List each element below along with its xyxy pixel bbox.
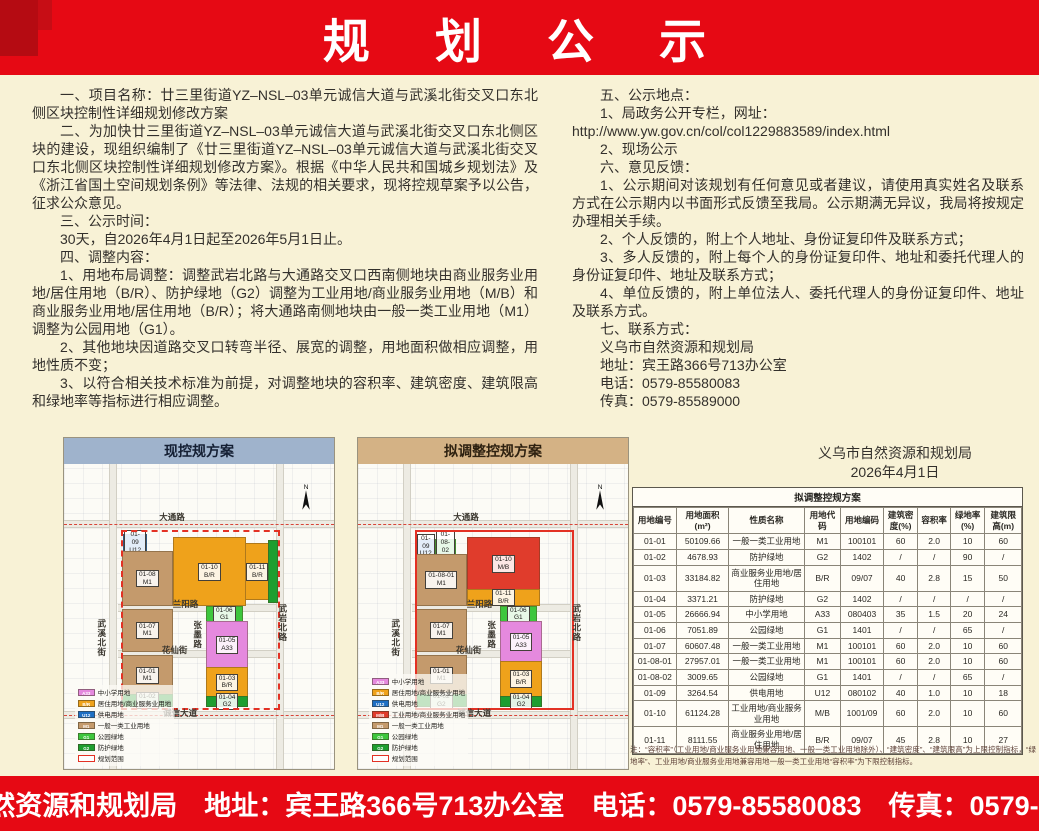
table-row: 01-10 61124.28 工业用地/商业服务业用地 M/B 1001/09 … [634, 701, 1022, 727]
legend-item: B/R 居住用地/商业服务业用地 [372, 687, 465, 697]
legend-item: G2 防护绿地 [78, 742, 171, 752]
legend-item: U12 供电用地 [372, 698, 465, 708]
cell-land-code: 100101 [841, 654, 884, 670]
map-legend: A33 中小学用地 B/R 居住用地/商业服务业用地 U12 供电用地 [75, 685, 174, 766]
cell-green-rate: 10 [950, 654, 985, 670]
parcel-code: M1 [143, 579, 152, 587]
parcel-id: 01-11 [249, 564, 265, 572]
legend-label: 公园绿地 [98, 731, 124, 741]
cell-use-name: 中小学用地 [729, 607, 804, 623]
parcel-label: 01-11 B/R [246, 563, 268, 581]
table-header-cell: 用地编号 [634, 508, 677, 534]
table-row: 01-01 50109.66 一般一类工业用地 M1 100101 60 2.0… [634, 534, 1022, 550]
parcel-label: 01-07 M1 [430, 622, 453, 640]
table-row: 01-07 60607.48 一般一类工业用地 M1 100101 60 2.0… [634, 638, 1022, 654]
legend-swatch: M/B [372, 711, 389, 718]
cell-area: 3264.54 [676, 685, 729, 701]
land-parcel: 01-09 U12 [123, 534, 147, 551]
parcel-id: 01-08-02 [439, 531, 452, 554]
cell-land-code: 080102 [841, 685, 884, 701]
table-header-cell: 建筑限高(m) [985, 508, 1022, 534]
control-plan-table-block: 拟调整控规方案 用地编号用地面积(m²)性质名称用地代码用地编码建筑密度(%)容… [632, 487, 1023, 755]
paragraph: 三、公示时间： [32, 212, 538, 230]
cell-green-rate: 90 [950, 549, 985, 565]
legend-item: G1 公园绿地 [78, 731, 171, 741]
table-header-cell: 建筑密度(%) [883, 508, 918, 534]
cell-plot-id: 01-04 [634, 591, 677, 607]
land-parcel: 01-10 B/R [173, 537, 245, 606]
legend-swatch: B/R [78, 700, 95, 707]
legend-swatch: M1 [372, 722, 389, 729]
parcel-id: 01-03 [513, 671, 530, 679]
paragraph: 2、其他地块因道路交叉口转弯半径、展宽的调整，用地面积做相应调整，用地性质不变； [32, 338, 538, 374]
cell-density: / [883, 591, 918, 607]
table-row: 01-02 4678.93 防护绿地 G2 1402 / / 90 / [634, 549, 1022, 565]
parcel-label: 01-03 B/R [510, 670, 533, 688]
map-proposed-title: 拟调整控规方案 [358, 438, 628, 464]
legend-item: M1 一般一类工业用地 [78, 720, 171, 730]
paragraph: 传真：0579-85589000 [572, 392, 1024, 410]
cell-land-code: 1402 [841, 549, 884, 565]
table-header-cell: 用地代码 [804, 508, 841, 534]
cell-far: 2.0 [918, 654, 951, 670]
legend-item: B/R 居住用地/商业服务业用地 [78, 698, 171, 708]
legend-item: G1 公园绿地 [372, 731, 465, 741]
parcel-code: G2 [223, 701, 232, 709]
cell-use-name: 工业用地/商业服务业用地 [729, 701, 804, 727]
paragraph: 1、公示期间对该规划有任何意见或者建议，请使用真实姓名及联系方式在公示期内以书面… [572, 176, 1024, 230]
land-parcel: 01-04 G2 [206, 696, 249, 707]
land-parcel: 01-08-01 M1 [416, 554, 467, 606]
cell-plot-id: 01-06 [634, 623, 677, 639]
cell-use-code: A33 [804, 607, 841, 623]
header-corner-mark [0, 0, 38, 56]
cell-green-rate: 65 [950, 669, 985, 685]
cell-area: 61124.28 [676, 701, 729, 727]
cell-use-code: G1 [804, 669, 841, 685]
cell-green-rate: 10 [950, 638, 985, 654]
legend-label: 供电用地 [392, 698, 418, 708]
parcel-label: 01-04 G2 [216, 693, 239, 711]
legend-swatch: G2 [372, 744, 389, 751]
cell-use-name: 防护绿地 [729, 591, 804, 607]
signature-block: 义乌市自然资源和规划局 2026年4月1日 [770, 444, 1020, 482]
cell-plot-id: 01-10 [634, 701, 677, 727]
parcel-code: B/R [222, 682, 233, 690]
table-footnote: 注：“容积率”（工业用地/商业服务业用地兼容用地、一般一类工业用地除外）、“建筑… [630, 744, 1036, 767]
road-label: 花仙街 [456, 644, 482, 656]
parcel-code: B/R [204, 572, 215, 580]
legend-swatch: M1 [78, 722, 95, 729]
table-row: 01-04 3371.21 防护绿地 G2 1402 / / / / [634, 591, 1022, 607]
cell-height-limit: 24 [985, 607, 1022, 623]
cell-land-code: 080403 [841, 607, 884, 623]
table-row: 01-08-01 27957.01 一般一类工业用地 M1 100101 60 … [634, 654, 1022, 670]
parcel-id: 01-04 [219, 694, 236, 702]
legend-item: M/B 工业用地/商业服务业用地 [372, 709, 465, 719]
paragraph: 地址：宾王路366号713办公室 [572, 356, 1024, 374]
cell-height-limit: / [985, 591, 1022, 607]
land-parcel: 01-11 B/R [245, 543, 270, 600]
parcel-code: B/R [498, 598, 509, 606]
table-header-cell: 用地编码 [841, 508, 884, 534]
cell-green-rate: 10 [950, 534, 985, 550]
cell-area: 50109.66 [676, 534, 729, 550]
road-label: 武岩北路 [277, 604, 289, 642]
map-proposed-canvas: 01-09 U12 01-08-02 G1 01-08-01 [358, 464, 628, 769]
cell-green-rate: 10 [950, 701, 985, 727]
cell-far: / [918, 549, 951, 565]
cell-height-limit: 60 [985, 654, 1022, 670]
cell-far: 1.0 [918, 685, 951, 701]
legend-label: 公园绿地 [392, 731, 418, 741]
cell-area: 33184.82 [676, 565, 729, 591]
legend-swatch [372, 755, 389, 762]
parcel-label: 01-10 M/B [492, 555, 515, 573]
road-label: 大通路 [159, 511, 185, 523]
map-legend: A33 中小学用地 B/R 居住用地/商业服务业用地 U12 供电用地 [369, 674, 468, 766]
road-label: 武溪北街 [390, 619, 402, 657]
legend-item: 规划范围 [372, 753, 465, 763]
paragraph: http://www.yw.gov.cn/col/col1229883589/i… [572, 122, 1024, 140]
cell-density: 40 [883, 685, 918, 701]
svg-text:N: N [598, 484, 603, 491]
parcel-id: 01-10 [201, 564, 218, 572]
cell-land-code: 1401 [841, 669, 884, 685]
table-row: 01-09 3264.54 供电用地 U12 080102 40 1.0 10 … [634, 685, 1022, 701]
parcel-id: 01-01 [139, 668, 156, 676]
legend-label: 中小学用地 [98, 687, 131, 697]
cell-use-name: 一般一类工业用地 [729, 534, 804, 550]
cell-far: 1.5 [918, 607, 951, 623]
cell-land-code: 1402 [841, 591, 884, 607]
cell-plot-id: 01-05 [634, 607, 677, 623]
cell-land-code: 1401 [841, 623, 884, 639]
cell-plot-id: 01-07 [634, 638, 677, 654]
cell-density: 60 [883, 701, 918, 727]
cell-area: 3371.21 [676, 591, 729, 607]
parcel-code: B/R [252, 572, 263, 580]
parcel-label: 01-04 G2 [510, 693, 533, 711]
parcel-id: 01-07 [139, 623, 156, 631]
cell-use-code: G2 [804, 549, 841, 565]
parcel-id: 01-08 [139, 571, 156, 579]
cell-height-limit: 18 [985, 685, 1022, 701]
map-current-plan: 现控规方案 01-09 U12 [63, 437, 335, 770]
cell-use-name: 商业服务业用地/居住用地 [729, 565, 804, 591]
parcel-label: 01-11 B/R [492, 589, 514, 607]
legend-label: 工业用地/商业服务业用地 [392, 709, 465, 719]
road-label: 大通路 [453, 511, 479, 523]
land-parcel: 01-05 A33 [500, 621, 543, 663]
parcel-code: M1 [437, 630, 446, 638]
road-label: 张墨路 [486, 621, 498, 650]
cell-use-code: B/R [804, 565, 841, 591]
header-band: 规 划 公 示 [0, 0, 1039, 75]
cell-far: / [918, 669, 951, 685]
table-row: 01-08-02 3009.65 公园绿地 G1 1401 / / 65 / [634, 669, 1022, 685]
parcel-label: 01-05 A33 [510, 633, 533, 651]
parcel-label: 01-08 M1 [136, 570, 159, 588]
cell-area: 26666.94 [676, 607, 729, 623]
right-text-column: 五、公示地点：1、局政务公开专栏，网址：http://www.yw.gov.cn… [572, 86, 1024, 410]
cell-density: 60 [883, 638, 918, 654]
cell-far: 2.0 [918, 534, 951, 550]
parcel-label: 01-10 B/R [198, 563, 221, 581]
table-header-cell: 容积率 [918, 508, 951, 534]
paragraph: 3、以符合相关技术标准为前提，对调整地块的容积率、建筑密度、建筑限高和绿地率等指… [32, 374, 538, 410]
cell-height-limit: 60 [985, 638, 1022, 654]
north-arrow-icon: N [297, 482, 315, 512]
parcel-id: 01-10 [495, 556, 512, 564]
announcement-page: 规 划 公 示 一、项目名称：廿三里街道YZ–NSL–03单元诚信大道与武溪北街… [0, 0, 1039, 831]
legend-swatch: A33 [372, 678, 389, 685]
cell-far: / [918, 623, 951, 639]
parcel-code: A33 [221, 645, 233, 653]
cell-land-code: 09/07 [841, 565, 884, 591]
cell-height-limit: 60 [985, 701, 1022, 727]
cell-land-code: 100101 [841, 534, 884, 550]
paragraph: 3、多人反馈的，附上每个人的身份证复印件、地址和委托代理人的身份证复印件、地址及… [572, 248, 1024, 284]
parcel-code: G2 [517, 701, 526, 709]
parcel-code: M1 [437, 580, 446, 588]
cell-height-limit: / [985, 549, 1022, 565]
cell-use-code: M1 [804, 638, 841, 654]
cell-use-code: M1 [804, 534, 841, 550]
cell-green-rate: / [950, 591, 985, 607]
land-parcel: 01-05 A33 [206, 621, 249, 669]
cell-density: 35 [883, 607, 918, 623]
parcel-id: 01-07 [433, 623, 450, 631]
cell-green-rate: 10 [950, 685, 985, 701]
cell-density: / [883, 623, 918, 639]
paragraph: 30天，自2026年4月1日起至2026年5月1日止。 [32, 230, 538, 248]
paragraph: 4、单位反馈的，附上单位法人、委托代理人的身份证复印件、地址及联系方式。 [572, 284, 1024, 320]
cell-plot-id: 01-01 [634, 534, 677, 550]
paragraph: 六、意见反馈： [572, 158, 1024, 176]
parcel-id: 01-04 [513, 694, 530, 702]
cell-area: 7051.89 [676, 623, 729, 639]
parcel-id: 01-06 [216, 607, 233, 615]
cell-green-rate: 65 [950, 623, 985, 639]
cell-use-name: 一般一类工业用地 [729, 638, 804, 654]
cell-density: / [883, 549, 918, 565]
paragraph: 电话：0579-85580083 [572, 374, 1024, 392]
legend-label: 居住用地/商业服务业用地 [98, 698, 171, 708]
parcel-label: 01-07 M1 [136, 622, 159, 640]
map-current-canvas: 01-09 U12 01-08 M1 01-10 [64, 464, 334, 769]
land-parcel: 01-04 G2 [500, 696, 543, 707]
legend-swatch: B/R [372, 689, 389, 696]
land-parcel: 01-08-02 G1 [435, 539, 456, 555]
parcel-code: B/R [516, 679, 527, 687]
cell-green-rate: 15 [950, 565, 985, 591]
table-header-cell: 性质名称 [729, 508, 804, 534]
cell-area: 60607.48 [676, 638, 729, 654]
legend-label: 供电用地 [98, 709, 124, 719]
cell-use-name: 公园绿地 [729, 623, 804, 639]
svg-text:N: N [304, 484, 309, 491]
cell-use-name: 一般一类工业用地 [729, 654, 804, 670]
control-plan-table: 用地编号用地面积(m²)性质名称用地代码用地编码建筑密度(%)容积率绿地率(%)… [633, 507, 1022, 754]
legend-item: 规划范围 [78, 753, 171, 763]
cell-use-code: M1 [804, 654, 841, 670]
paragraph: 五、公示地点： [572, 86, 1024, 104]
road-label: 花仙街 [162, 644, 188, 656]
cell-area: 27957.01 [676, 654, 729, 670]
legend-swatch: G2 [78, 744, 95, 751]
parcel-label: 01-01 M1 [136, 667, 159, 685]
cell-density: 40 [883, 565, 918, 591]
road-centerline [358, 524, 628, 525]
legend-swatch: U12 [78, 711, 95, 718]
legend-label: 防护绿地 [98, 742, 124, 752]
paragraph: 1、用地布局调整：调整武岩北路与大通路交叉口西南侧地块由商业服务业用地/居住用地… [32, 266, 538, 338]
parcel-id: 01-09 [127, 531, 143, 547]
paragraph: 七、联系方式： [572, 320, 1024, 338]
table-body: 01-01 50109.66 一般一类工业用地 M1 100101 60 2.0… [634, 534, 1022, 753]
footer-band: 义乌市自然资源和规划局 地址：宾王路366号713办公室 电话：0579-855… [0, 776, 1039, 831]
paragraph: 义乌市自然资源和规划局 [572, 338, 1024, 356]
north-arrow-icon: N [591, 482, 609, 512]
paragraph: 2、现场公示 [572, 140, 1024, 158]
cell-use-name: 防护绿地 [729, 549, 804, 565]
cell-green-rate: 20 [950, 607, 985, 623]
cell-use-code: G1 [804, 623, 841, 639]
cell-land-code: 100101 [841, 638, 884, 654]
road-label: 张墨路 [192, 621, 204, 650]
cell-plot-id: 01-02 [634, 549, 677, 565]
map-proposed-plan: 拟调整控规方案 01-09 U12 [357, 437, 629, 770]
paragraph: 1、局政务公开专栏，网址： [572, 104, 1024, 122]
table-row: 01-06 7051.89 公园绿地 G1 1401 / / 65 / [634, 623, 1022, 639]
signature-org: 义乌市自然资源和规划局 [770, 444, 1020, 463]
cell-density: 60 [883, 654, 918, 670]
parcel-code: A33 [515, 642, 527, 650]
legend-label: 一般一类工业用地 [98, 720, 150, 730]
legend-item: M1 一般一类工业用地 [372, 720, 465, 730]
signature-date: 2026年4月1日 [770, 463, 1020, 482]
table-title: 拟调整控规方案 [633, 488, 1022, 507]
parcel-id: 01-05 [219, 637, 236, 645]
cell-far: / [918, 591, 951, 607]
legend-item: A33 中小学用地 [372, 676, 465, 686]
legend-item: A33 中小学用地 [78, 687, 171, 697]
cell-far: 2.0 [918, 638, 951, 654]
parcel-id: 01-03 [219, 675, 236, 683]
cell-land-code: 1001/09 [841, 701, 884, 727]
cell-plot-id: 01-03 [634, 565, 677, 591]
legend-swatch: U12 [372, 700, 389, 707]
legend-swatch: A33 [78, 689, 95, 696]
left-text-column: 一、项目名称：廿三里街道YZ–NSL–03单元诚信大道与武溪北街交叉口东北侧区块… [32, 86, 538, 410]
cell-area: 3009.65 [676, 669, 729, 685]
parcel-label: 01-05 A33 [216, 636, 239, 654]
legend-label: 防护绿地 [392, 742, 418, 752]
legend-label: 中小学用地 [392, 676, 425, 686]
page-title: 规 划 公 示 [323, 3, 716, 72]
cell-density: 60 [883, 534, 918, 550]
land-parcel [268, 540, 278, 603]
table-header-cell: 用地面积(m²) [676, 508, 729, 534]
header-corner-mark-small [38, 0, 52, 30]
parcel-id: 01-06 [510, 607, 527, 615]
paragraph: 一、项目名称：廿三里街道YZ–NSL–03单元诚信大道与武溪北街交叉口东北侧区块… [32, 86, 538, 122]
legend-swatch: G1 [372, 733, 389, 740]
legend-label: 一般一类工业用地 [392, 720, 444, 730]
cell-far: 2.8 [918, 565, 951, 591]
land-parcel: 01-08 M1 [122, 551, 173, 606]
cell-height-limit: / [985, 669, 1022, 685]
legend-label: 规划范围 [392, 753, 418, 763]
cell-plot-id: 01-09 [634, 685, 677, 701]
legend-label: 规划范围 [98, 753, 124, 763]
cell-area: 4678.93 [676, 549, 729, 565]
parcel-code: M/B [498, 564, 510, 572]
parcel-id: 01-05 [513, 634, 530, 642]
table-row: 01-05 26666.94 中小学用地 A33 080403 35 1.5 2… [634, 607, 1022, 623]
legend-swatch: G1 [78, 733, 95, 740]
parcel-id: 01-09 [420, 535, 432, 551]
cell-plot-id: 01-08-02 [634, 669, 677, 685]
map-current-title: 现控规方案 [64, 438, 334, 464]
parcel-label: 01-03 B/R [216, 674, 239, 692]
cell-use-name: 公园绿地 [729, 669, 804, 685]
parcel-label: 01-08-01 M1 [425, 571, 457, 589]
road-label: 武岩北路 [571, 604, 583, 642]
road-label: 武溪北街 [96, 619, 108, 657]
legend-item: U12 供电用地 [78, 709, 171, 719]
footer-contact-text: 义乌市自然资源和规划局 地址：宾王路366号713办公室 电话：0579-855… [0, 784, 1039, 823]
cell-height-limit: / [985, 623, 1022, 639]
cell-density: / [883, 669, 918, 685]
parcel-id: 01-08-01 [428, 572, 454, 580]
cell-use-code: G2 [804, 591, 841, 607]
cell-far: 2.0 [918, 701, 951, 727]
cell-height-limit: 60 [985, 534, 1022, 550]
legend-swatch [78, 755, 95, 762]
paragraph: 二、为加快廿三里街道YZ–NSL–03单元诚信大道与武溪北街交叉口东北侧区块的建… [32, 122, 538, 212]
road-label: 兰阳路 [173, 598, 199, 610]
table-header-row: 用地编号用地面积(m²)性质名称用地代码用地编码建筑密度(%)容积率绿地率(%)… [634, 508, 1022, 534]
road-label: 兰阳路 [467, 598, 493, 610]
land-parcel: 01-10 M/B [467, 537, 539, 591]
road-centerline [64, 524, 334, 525]
land-parcel: 01-09 U12 [416, 539, 436, 555]
cell-plot-id: 01-08-01 [634, 654, 677, 670]
paragraph: 2、个人反馈的，附上个人地址、身份证复印件及联系方式； [572, 230, 1024, 248]
table-wrapper: 拟调整控规方案 用地编号用地面积(m²)性质名称用地代码用地编码建筑密度(%)容… [632, 487, 1023, 755]
table-row: 01-03 33184.82 商业服务业用地/居住用地 B/R 09/07 40… [634, 565, 1022, 591]
cell-use-name: 供电用地 [729, 685, 804, 701]
legend-label: 居住用地/商业服务业用地 [392, 687, 465, 697]
cell-use-code: M/B [804, 701, 841, 727]
parcel-code: M1 [143, 675, 152, 683]
parcel-id: 01-11 [495, 590, 511, 598]
legend-item: G2 防护绿地 [372, 742, 465, 752]
cell-use-code: U12 [804, 685, 841, 701]
cell-height-limit: 50 [985, 565, 1022, 591]
table-header-cell: 绿地率(%) [950, 508, 985, 534]
paragraph: 四、调整内容： [32, 248, 538, 266]
parcel-code: M1 [143, 630, 152, 638]
